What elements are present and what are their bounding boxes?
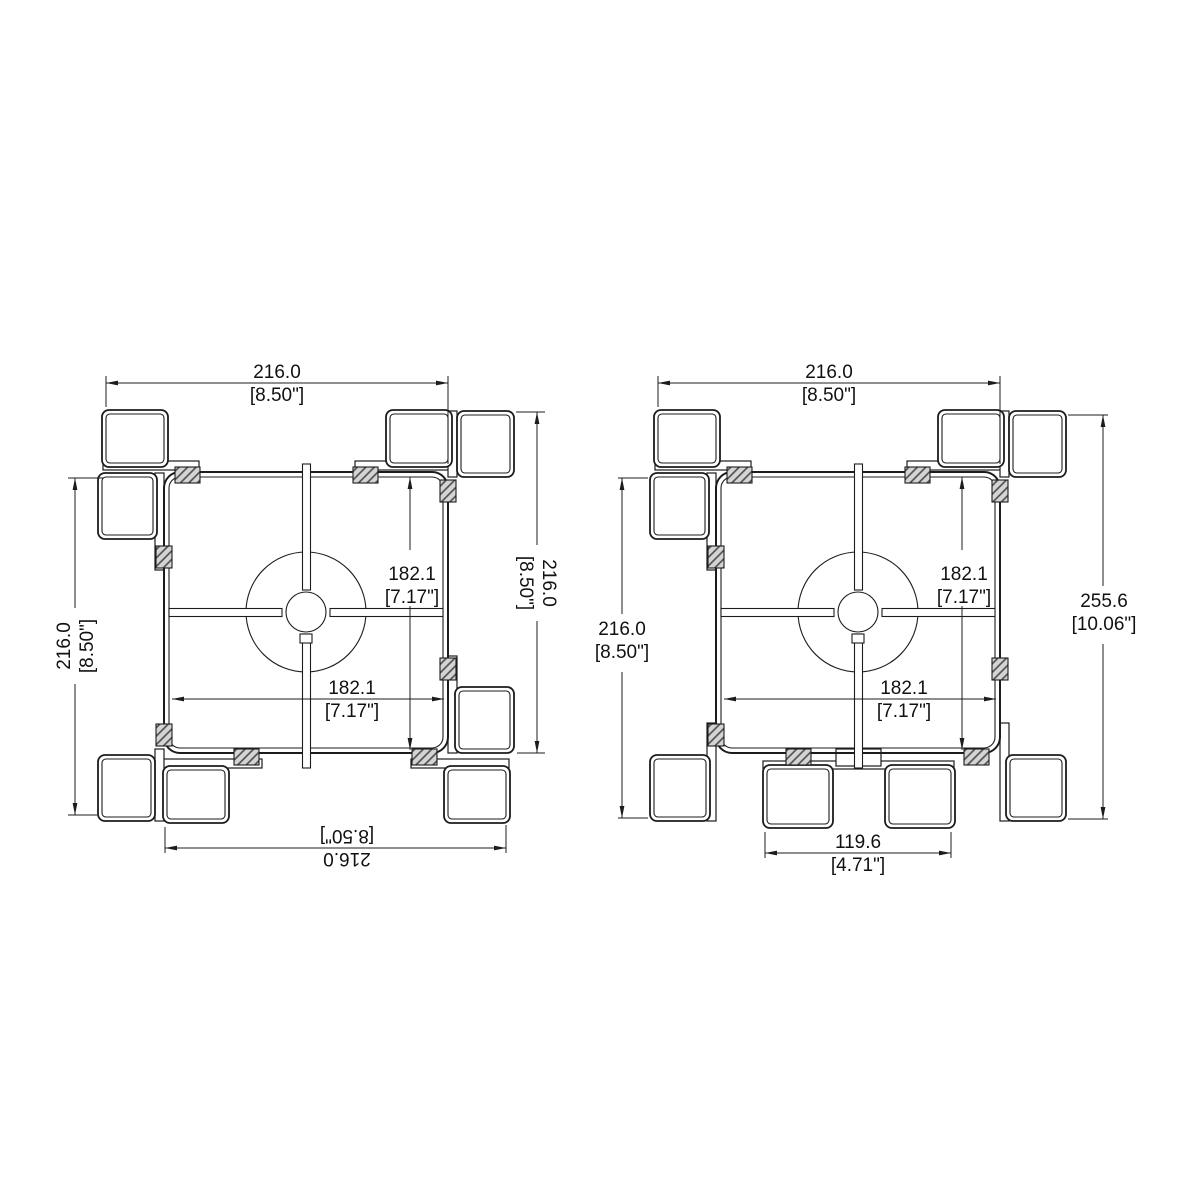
slot-end-tab xyxy=(300,634,312,643)
center-hole xyxy=(286,592,326,632)
center-hole xyxy=(838,592,878,632)
dim-label-top: 216.0[8.50"] xyxy=(802,362,856,406)
dim-label-inner-horizontal: 182.1[7.17"] xyxy=(325,678,379,722)
dim-label-inner-horizontal: 182.1[7.17"] xyxy=(877,678,931,722)
slot xyxy=(330,609,443,617)
technical-drawing: 216.0[8.50"] 216.0[8.50"] 216.0[8.50"] 2… xyxy=(0,0,1200,1200)
dim-label-bottom: 216.0[8.50"] xyxy=(320,825,374,869)
slot xyxy=(855,464,863,590)
slot xyxy=(721,609,834,617)
drawing-sheet: 216.0[8.50"] 216.0[8.50"] 216.0[8.50"] 2… xyxy=(0,0,1200,1200)
slot xyxy=(303,634,311,768)
slot xyxy=(882,609,995,617)
slot xyxy=(303,464,311,590)
slot xyxy=(855,634,863,768)
slot-end-tab xyxy=(852,634,864,643)
drawing-view-1: 216.0[8.50"] 216.0[8.50"] 216.0[8.50"] 2… xyxy=(54,362,560,869)
dim-label-bottom: 119.6[4.71"] xyxy=(831,832,885,876)
dim-label-top: 216.0[8.50"] xyxy=(250,362,304,406)
connector-plate xyxy=(836,749,856,766)
drawing-view-2: 216.0[8.50"] 216.0[8.50"] 255.6[10.06"] … xyxy=(594,362,1144,876)
connector-plate xyxy=(861,749,881,766)
slot xyxy=(169,609,282,617)
